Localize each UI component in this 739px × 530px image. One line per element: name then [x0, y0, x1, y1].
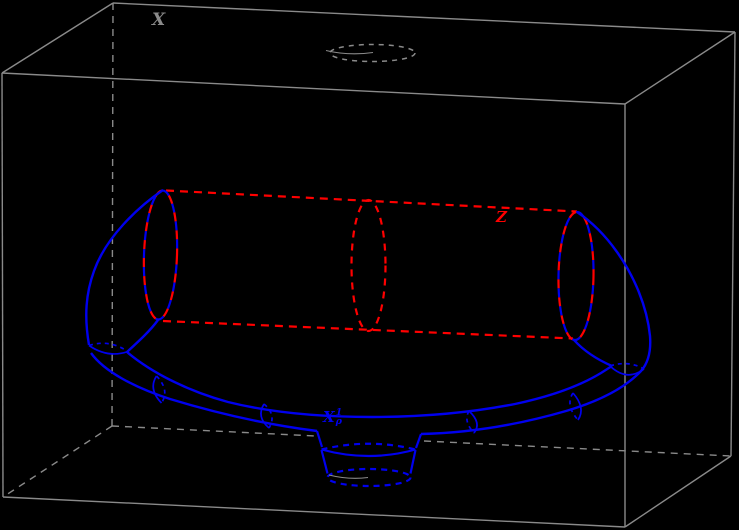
meridian-rings [89, 343, 644, 433]
left-end-cap [142, 190, 179, 320]
cylinder-label: Z [496, 208, 507, 226]
cylinder-mid-section [352, 200, 386, 331]
tube-label: X 1 ρ [323, 407, 342, 426]
foot-left-side [322, 450, 328, 474]
ring-1 [89, 343, 128, 354]
ambient-space-label: X [152, 10, 165, 30]
tube-label-sub: ρ [336, 417, 343, 426]
ring-6 [610, 364, 644, 375]
tube-label-scripts: 1 ρ [336, 408, 343, 426]
ring-2 [153, 376, 165, 403]
cylinder-bottom-line [163, 321, 573, 339]
foot-top-rim-back [322, 444, 416, 450]
tube-outer-bottom-left [91, 353, 317, 431]
tube-wrap-right [574, 340, 612, 366]
box-hidden-edges [3, 3, 731, 497]
cylinder-z [163, 191, 577, 339]
tube-label-base: X [323, 408, 335, 426]
top-face-hole [326, 45, 415, 62]
foot-right-side-upper [416, 434, 421, 448]
figure-canvas: X Z X 1 ρ [0, 0, 739, 530]
foot-left-side-upper [317, 431, 322, 447]
bottom-cylinder-foot [317, 431, 421, 486]
foot-top-rim-front [322, 450, 416, 457]
foot-bottom-floor-arc [329, 475, 368, 478]
diagram-svg [0, 0, 739, 530]
tube-end-caps [142, 190, 595, 340]
foot-right-side [411, 450, 416, 474]
tube-outer-left [86, 190, 163, 345]
tube-wrap-left [127, 320, 158, 352]
right-end-cap [557, 212, 594, 341]
tube-outer-bottom-right [421, 212, 650, 434]
